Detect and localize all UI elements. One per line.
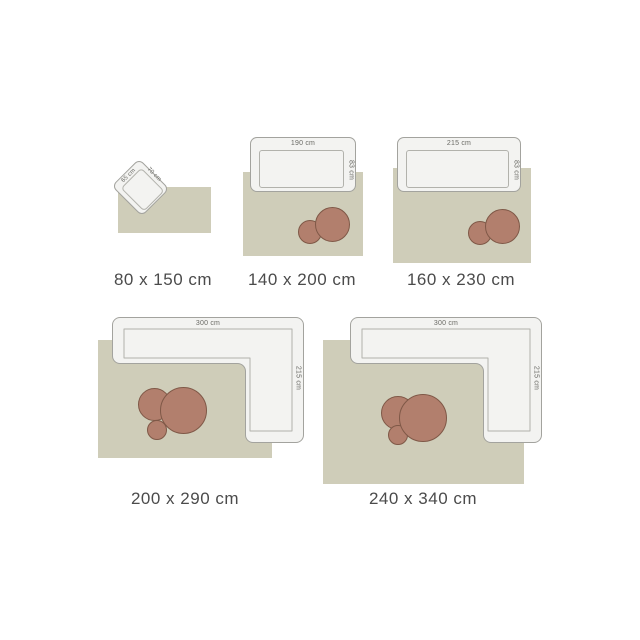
size-caption-240x340: 240 x 340 cm (338, 490, 508, 507)
coffee-table (399, 394, 447, 442)
corner-sofa-shape (112, 317, 304, 443)
corner-sofa-depth-label: 215 cm (533, 366, 540, 390)
sofa-seat (406, 150, 509, 188)
sofa-depth-label: 83 cm (348, 160, 355, 180)
corner-sofa-depth-label: 215 cm (295, 366, 302, 390)
corner-sofa-width-label: 300 cm (112, 320, 304, 327)
coffee-table (485, 209, 520, 244)
sofa-depth-label: 83 cm (513, 160, 520, 180)
sofa-topview: 215 cm 83 cm (397, 137, 521, 192)
corner-sofa-width-label: 300 cm (350, 320, 542, 327)
size-caption-160x230: 160 x 230 cm (376, 271, 546, 288)
size-caption-200x290: 200 x 290 cm (100, 490, 270, 507)
sofa-width-label: 215 cm (398, 140, 520, 147)
coffee-table (160, 387, 207, 434)
coffee-table (315, 207, 350, 242)
sofa-seat (259, 150, 344, 188)
rug-size-guide: 65 cm 70 cm 80 x 150 cm 190 cm 83 cm 140… (0, 0, 640, 640)
sofa-width-label: 190 cm (251, 140, 355, 147)
corner-sofa-topview: 300 cm 215 cm (112, 317, 304, 443)
size-caption-140x200: 140 x 200 cm (217, 271, 387, 288)
sofa-topview: 190 cm 83 cm (250, 137, 356, 192)
